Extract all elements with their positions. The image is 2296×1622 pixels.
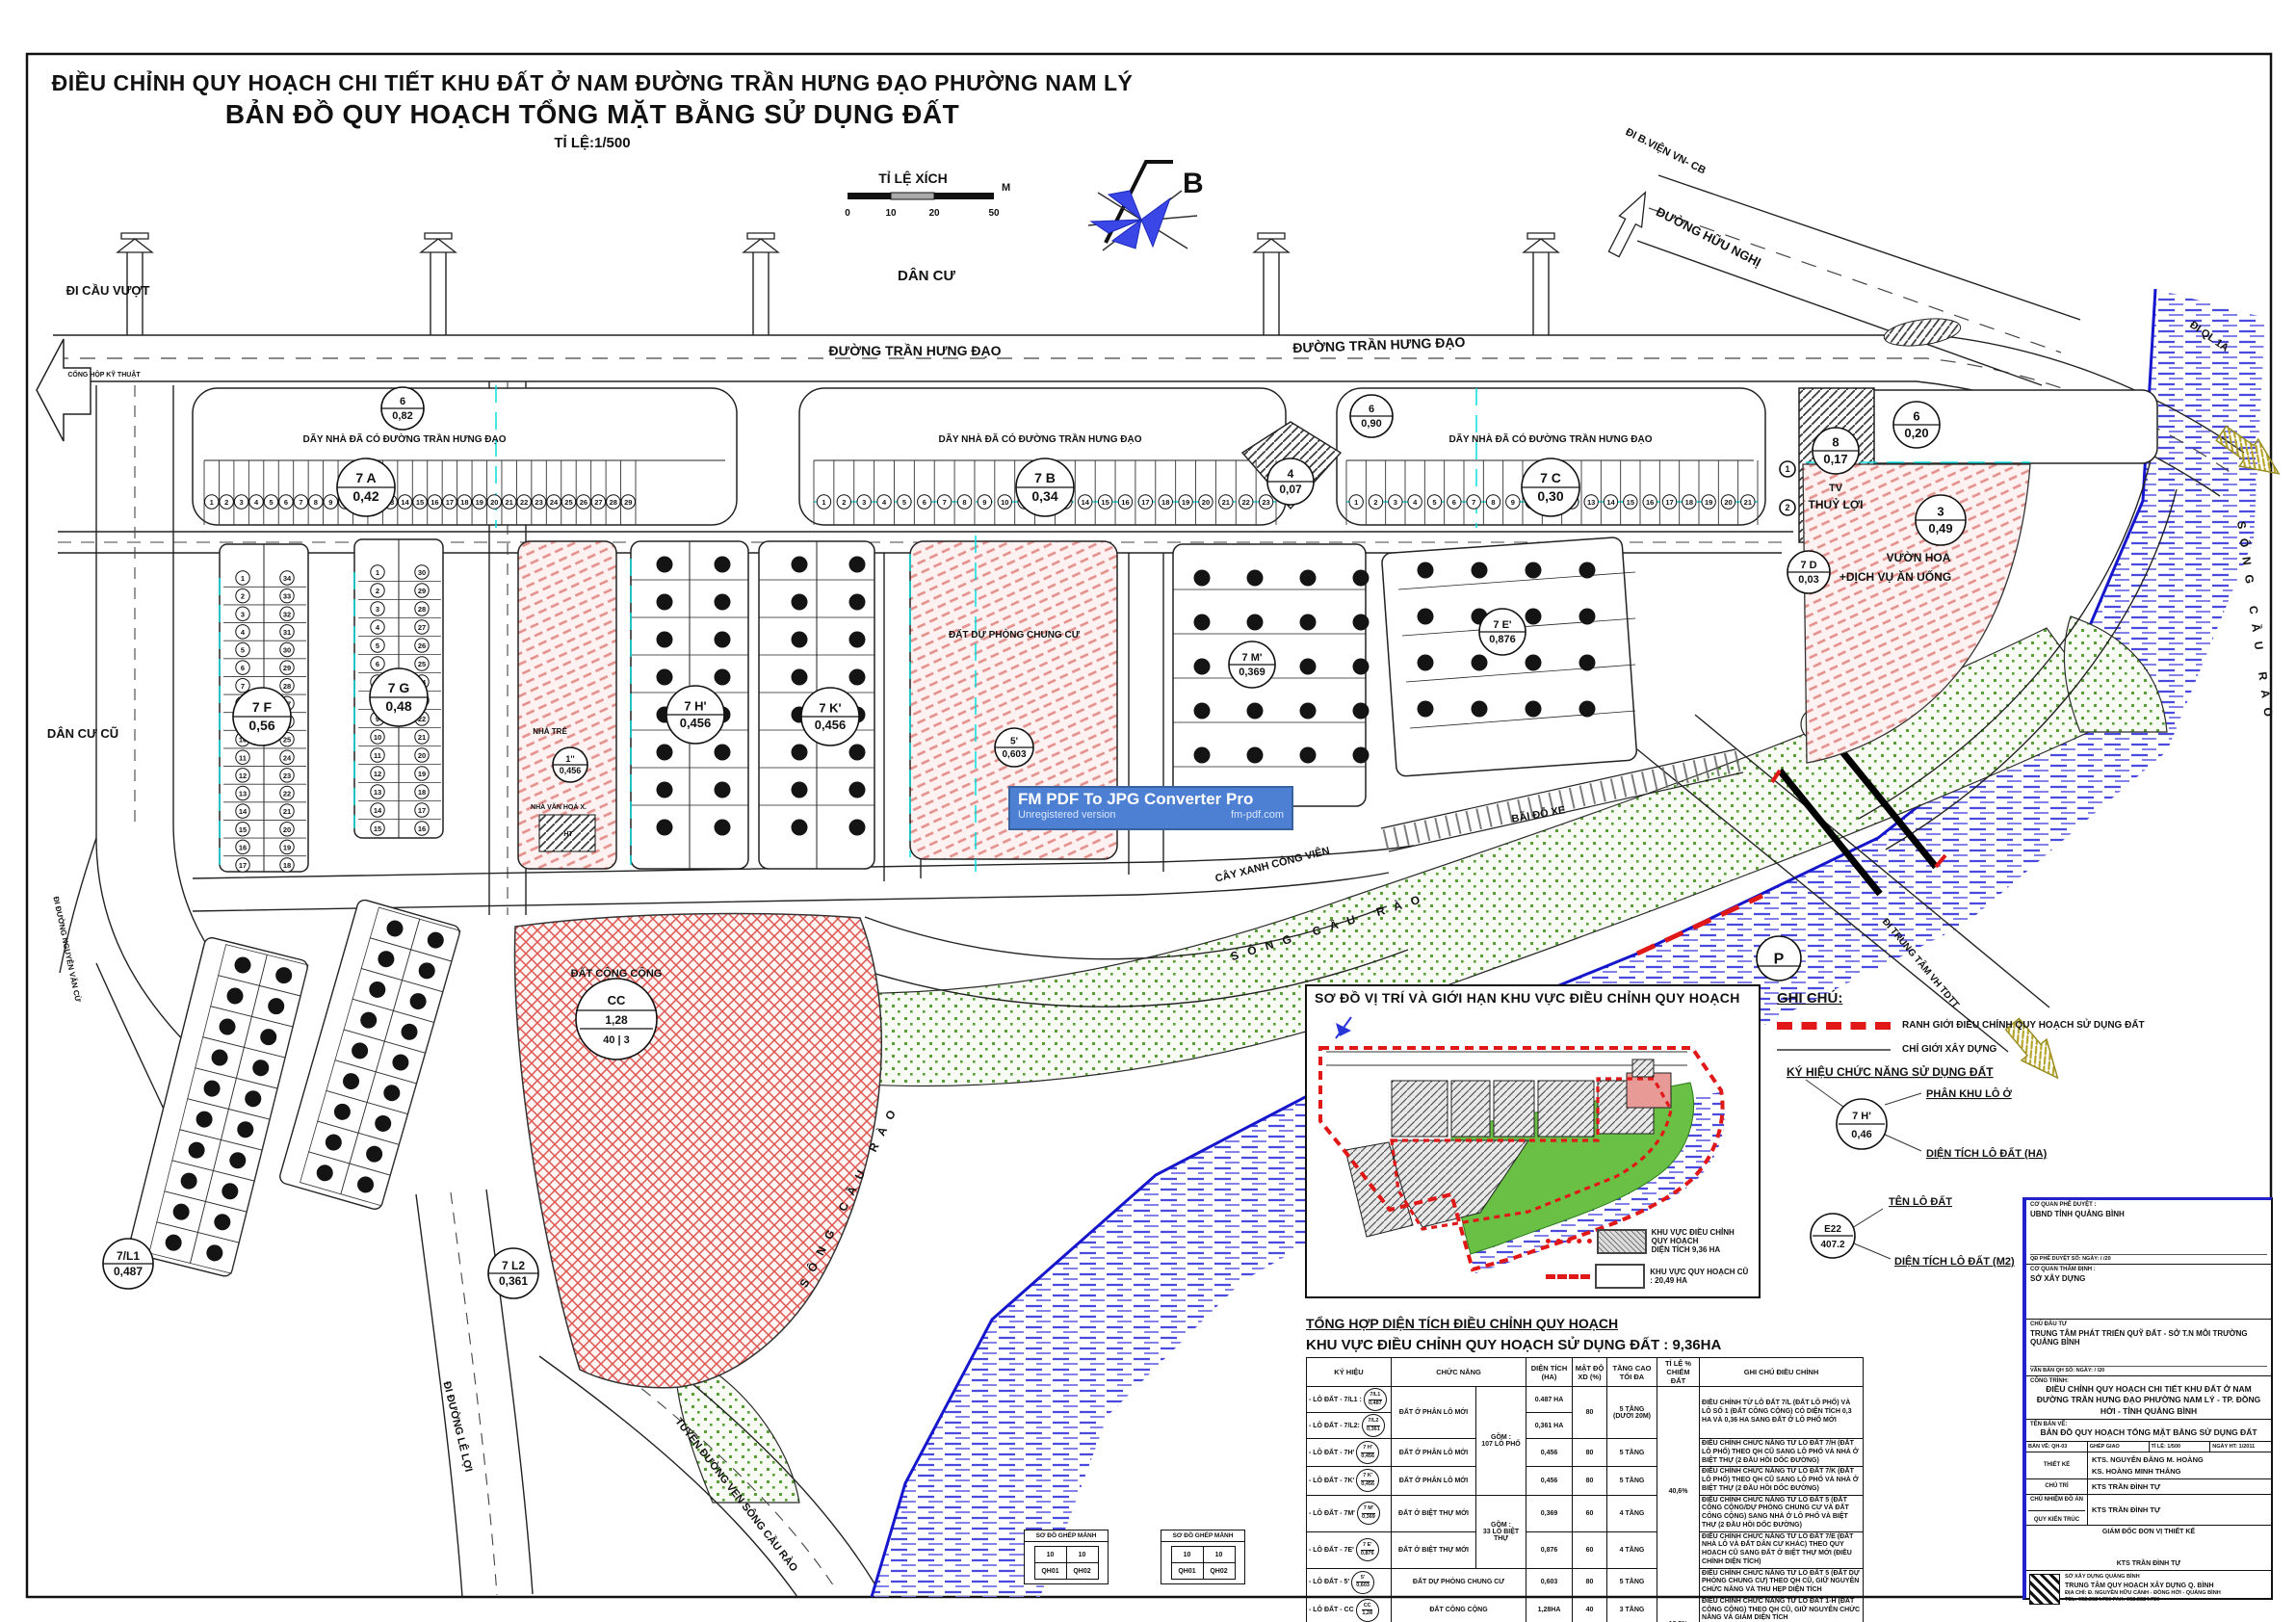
parcel-circle: 2 [1780, 500, 1795, 515]
table-cell: 0,603 [1526, 1568, 1573, 1596]
map-label: +DỊCH VỤ ĂN UỐNG [1839, 569, 1951, 584]
parcel-circle: 40,07 [1267, 458, 1314, 505]
inset-legend-dotted-line [1546, 1239, 1592, 1243]
svg-text:16: 16 [418, 824, 426, 833]
table-row: - LÔ ĐẤT - 7/L1 :7/L10,487ĐẤT Ở PHÂN LÔ … [1307, 1387, 1864, 1413]
svg-text:13: 13 [1587, 498, 1595, 507]
table-cell: 80 [1573, 1467, 1607, 1495]
table-cell: 60 [1573, 1495, 1607, 1531]
svg-text:22: 22 [520, 498, 528, 507]
svg-text:8: 8 [962, 498, 966, 507]
svg-text:11: 11 [239, 753, 247, 762]
table-header: TỈ LỆ % CHIẾM ĐẤT [1657, 1358, 1700, 1387]
svg-text:16: 16 [1646, 498, 1654, 507]
svg-text:B: B [1183, 168, 1204, 199]
svg-text:2: 2 [1373, 498, 1377, 507]
exit-arrow-benh-vien [1603, 187, 1657, 260]
lead-name: KTS TRẦN ĐÌNH TỰ [2092, 1482, 2267, 1491]
watermark-title: FM PDF To JPG Converter Pro [1018, 791, 1284, 809]
drawing-meta-row: BẢN VẼ: QH-03 GHÉP GIAO TỈ LỆ: 1/500 NGÀ… [2026, 1442, 2271, 1452]
svg-text:7 G: 7 G [388, 680, 410, 695]
svg-text:TÊN LÔ ĐẤT: TÊN LÔ ĐẤT [1889, 1195, 1952, 1208]
svg-text:15: 15 [416, 498, 424, 507]
svg-text:P: P [1774, 952, 1785, 968]
svg-text:11: 11 [374, 751, 381, 760]
svg-text:7 L2: 7 L2 [502, 1259, 525, 1272]
scale-bar: TỈ LỆ XÍCH 0 10 20 50 M [845, 170, 1010, 219]
table-cell: 4 TẦNG [1607, 1531, 1657, 1568]
table-cell: 0.487 HA [1526, 1387, 1573, 1413]
svg-text:20: 20 [490, 498, 498, 507]
inset-legend: KHU VỰC ĐIỀU CHỈNH QUY HOẠCH DIỆN TÍCH 9… [1546, 1218, 1753, 1289]
summary-table-panel: TỔNG HỢP DIỆN TÍCH ĐIỀU CHỈNH QUY HOẠCH … [1306, 1316, 1865, 1622]
lead-row: CHỦ TRÌ KTS TRẦN ĐÌNH TỰ [2026, 1479, 2271, 1495]
table-cell: - LÔ ĐẤT - 7K'7 K'0,456 [1307, 1467, 1392, 1495]
parcel-circle: P [1757, 936, 1801, 981]
table-header: MẬT ĐỘ XD (%) [1573, 1358, 1607, 1387]
table-cell: ĐẤT DỰ PHÒNG CHUNG CƯ [1392, 1568, 1526, 1596]
inset-legend-white-swatch [1595, 1264, 1645, 1289]
table-cell: ĐIỀU CHỈNH TỪ LÔ ĐẤT 7/L (ĐẤT LÔ PHỐ) VÀ… [1700, 1387, 1864, 1439]
table-cell: ĐIỀU CHỈNH CHỨC NĂNG TỪ LÔ ĐẤT 7/E (ĐẤT … [1700, 1531, 1864, 1568]
parcel-circle: 60,90 [1350, 395, 1393, 437]
svg-text:1: 1 [1785, 464, 1789, 474]
table-cell: - LÔ ĐẤT - CCCC1,28 [1307, 1596, 1392, 1622]
svg-text:7 A: 7 A [355, 470, 376, 485]
inset-legend2-label: KHU VỰC QUY HOẠCH CŨ : 20,49 HA [1650, 1268, 1753, 1285]
map-label: ĐƯỜNG HỮU NGHỊ [1654, 204, 1763, 270]
map-label: DÃY NHÀ ĐÃ CÓ ĐƯỜNG TRẦN HƯNG ĐẠO [1448, 432, 1652, 445]
svg-text:1: 1 [376, 568, 379, 577]
table-cell: 80 [1573, 1439, 1607, 1467]
table-cell: ĐIỀU CHỈNH CHỨC NĂNG TỪ LÔ ĐẤT 5 (ĐẤT CÔ… [1700, 1495, 1864, 1531]
table-header: GHI CHÚ ĐIỀU CHỈNH [1700, 1358, 1864, 1387]
exit-arrow-cau-vuot [37, 339, 91, 441]
table-cell: - LÔ ĐẤT - 5'5'0,603 [1307, 1568, 1392, 1596]
svg-text:25: 25 [418, 660, 426, 668]
svg-text:0,48: 0,48 [385, 698, 411, 714]
designer-name-2: KS. HOÀNG MINH THẮNG [2092, 1467, 2267, 1476]
table-cell: ĐẤT Ở PHÂN LÔ MỚI [1392, 1467, 1476, 1495]
svg-text:14: 14 [239, 807, 248, 816]
svg-text:5': 5' [1010, 737, 1018, 747]
drawing-date: NGÀY HT: 1/2011 [2210, 1442, 2271, 1452]
svg-text:6: 6 [1913, 408, 1919, 423]
svg-text:0,42: 0,42 [352, 488, 378, 504]
svg-text:27: 27 [594, 498, 602, 507]
svg-text:0,361: 0,361 [499, 1274, 528, 1288]
table-cell: 18,5% [1657, 1596, 1700, 1622]
svg-text:27: 27 [418, 623, 426, 632]
svg-text:0,49: 0,49 [1928, 521, 1952, 536]
table-cell: ĐẤT Ở PHÂN LÔ MỚI [1392, 1439, 1476, 1467]
map-label: ĐI CẦU VƯỢT [66, 283, 150, 298]
svg-text:21: 21 [1744, 498, 1752, 507]
svg-text:20: 20 [1724, 498, 1732, 507]
map-label: NHÀ VĂN HOÁ X. [531, 802, 587, 811]
svg-text:7/L1: 7/L1 [117, 1249, 140, 1263]
parcel-circle: 7 K'0,456 [801, 688, 859, 746]
traffic-island [1883, 315, 1963, 351]
director-name: KTS TRẦN ĐÌNH TỰ [2029, 1560, 2268, 1567]
pdf-converter-watermark: FM PDF To JPG Converter Pro Unregistered… [1008, 786, 1293, 830]
org-line-2: TRUNG TÂM QUY HOẠCH XÂY DỰNG Q. BÌNH [2065, 1582, 2221, 1590]
parcel-circle: 7/L10,487 [103, 1239, 153, 1289]
summary-table: KÝ HIỆUCHỨC NĂNGDIỆN TÍCH (HA)MẬT ĐỘ XD … [1306, 1357, 1864, 1622]
svg-text:6: 6 [241, 664, 245, 672]
map-label: ĐI ĐƯỜNG NGUYỄN VĂN CỪ [51, 896, 82, 1003]
svg-text:31: 31 [283, 628, 291, 637]
svg-text:5: 5 [376, 641, 379, 650]
map-label: ĐƯỜNG TRẦN HƯNG ĐẠO [828, 342, 1001, 358]
svg-text:7 H': 7 H' [684, 698, 706, 713]
watermark-site: fm-pdf.com [1231, 809, 1284, 821]
svg-text:6: 6 [284, 498, 288, 507]
reviewer-value: SỞ XÂY DỰNG [2030, 1274, 2267, 1283]
svg-text:29: 29 [624, 498, 632, 507]
svg-text:23: 23 [283, 772, 291, 780]
svg-text:17: 17 [1665, 498, 1673, 507]
parcel-circle: 7 F0,56 [233, 688, 291, 746]
lead-role: CHỦ TRÌ [2026, 1479, 2088, 1494]
svg-text:20: 20 [1202, 498, 1210, 507]
svg-text:16: 16 [1121, 498, 1129, 507]
parcel-circle: 7 H'0,456 [666, 686, 724, 744]
watermark-subtitle: Unregistered version [1018, 809, 1116, 821]
svg-text:7 H': 7 H' [1852, 1111, 1871, 1122]
svg-text:18: 18 [418, 788, 426, 797]
table-header: DIỆN TÍCH (HA) [1526, 1358, 1573, 1387]
director-label: GIÁM ĐỐC ĐƠN VỊ THIẾT KẾ [2029, 1529, 2268, 1535]
table-row: - LÔ ĐẤT - 7H'7 H'0,456ĐẤT Ở PHÂN LÔ MỚI… [1307, 1439, 1864, 1467]
svg-text:21: 21 [1222, 498, 1230, 507]
svg-text:24: 24 [283, 753, 292, 762]
svg-text:0,30: 0,30 [1537, 488, 1563, 504]
svg-text:14: 14 [374, 806, 382, 815]
parcel-circle: 7 M'0,369 [1229, 641, 1275, 688]
map-label: NHÀ TRẺ [533, 727, 567, 736]
summary-table-subtitle: KHU VỰC ĐIỀU CHỈNH QUY HOẠCH SỬ DỤNG ĐẤT… [1306, 1337, 1865, 1353]
investor-label: CHỦ ĐẦU TƯ [2030, 1321, 2267, 1327]
table-cell: 0,361 HA [1526, 1413, 1573, 1439]
map-label: HT [563, 831, 573, 838]
table-cell: ĐẤT CÔNG CỘNG [1392, 1596, 1526, 1622]
parcel-circle: 7 E'0,876 [1479, 609, 1526, 655]
svg-text:0,82: 0,82 [392, 410, 412, 422]
svg-text:0,876: 0,876 [1489, 634, 1516, 645]
svg-text:0,20: 0,20 [1904, 426, 1928, 440]
investor-section: CHỦ ĐẦU TƯ TRUNG TÂM PHÁT TRIỂN QUỸ ĐẤT … [2026, 1320, 2271, 1376]
svg-text:0,17: 0,17 [1823, 452, 1847, 466]
table-row: - LÔ ĐẤT - 5'5'0,603ĐẤT DỰ PHÒNG CHUNG C… [1307, 1568, 1864, 1596]
svg-text:19: 19 [476, 498, 483, 507]
svg-text:6: 6 [1369, 404, 1374, 415]
summary-table-title: TỔNG HỢP DIỆN TÍCH ĐIỀU CHỈNH QUY HOẠCH [1306, 1316, 1865, 1331]
svg-text:17: 17 [418, 806, 426, 815]
map-label: ĐẤT DỰ PHÒNG CHUNG CƯ [949, 628, 1081, 641]
inset-title: SƠ ĐỒ VỊ TRÍ VÀ GIỚI HẠN KHU VỰC ĐIỀU CH… [1315, 990, 1753, 1006]
approver-note: QĐ PHÊ DUYỆT SỐ: NGÀY: / /20 [2030, 1254, 2267, 1262]
svg-text:7 E': 7 E' [1493, 619, 1512, 631]
map-label: TV [1829, 483, 1843, 494]
parcel-circle: 7 A0,42 [337, 458, 395, 516]
svg-text:13: 13 [374, 788, 381, 797]
svg-text:22: 22 [283, 790, 291, 798]
svg-text:17: 17 [1141, 498, 1149, 507]
svg-text:9: 9 [1511, 498, 1515, 507]
title-block: CƠ QUAN PHÊ DUYỆT : UBND TỈNH QUẢNG BÌNH… [2022, 1197, 2273, 1600]
drawing-name-section: TÊN BẢN VẼ: BẢN ĐỒ QUY HOẠCH TỔNG MẶT BẰ… [2026, 1420, 2271, 1441]
svg-text:3: 3 [240, 498, 244, 507]
map-label: ĐƯỜNG TRẦN HƯNG ĐẠO [1292, 333, 1466, 355]
table-cell: 4 TẦNG [1607, 1495, 1657, 1531]
svg-text:1: 1 [822, 498, 825, 507]
svg-text:33: 33 [283, 592, 291, 601]
parcel-circle: 1''0,456 [553, 747, 587, 782]
svg-text:13: 13 [239, 790, 247, 798]
svg-text:0,487: 0,487 [114, 1265, 143, 1278]
table-cell: GỒM :33 LÔ BIỆT THỰ [1476, 1495, 1526, 1568]
parcel-circle: 80,17 [1813, 428, 1859, 474]
parcel-circle: CC1,2840 | 3 [576, 979, 657, 1060]
svg-text:9: 9 [328, 498, 332, 507]
svg-text:19: 19 [1705, 498, 1712, 507]
svg-text:0,07: 0,07 [1279, 483, 1302, 496]
org-line-3: ĐỊA CHỈ: Đ. NGUYỄN HỮU CẢNH - ĐỒNG HỚI -… [2065, 1590, 2221, 1597]
svg-text:407.2: 407.2 [1820, 1240, 1844, 1250]
svg-text:12: 12 [374, 770, 381, 778]
svg-text:18: 18 [1161, 498, 1169, 507]
svg-text:7: 7 [1472, 498, 1475, 507]
parcel-circle: 7 L20,361 [488, 1248, 538, 1298]
inset-legend1-line1: KHU VỰC ĐIỀU CHỈNH QUY HOẠCH [1652, 1228, 1753, 1245]
svg-text:3: 3 [241, 610, 245, 618]
svg-text:28: 28 [610, 498, 617, 507]
svg-text:9: 9 [982, 498, 986, 507]
svg-text:3: 3 [1394, 498, 1397, 507]
chief-row: CHỦ NHIỆM ĐỒ ÁN QUY KIẾN TRÚC KTS TRẦN Đ… [2026, 1495, 2271, 1526]
svg-text:19: 19 [283, 843, 291, 851]
svg-text:16: 16 [430, 498, 438, 507]
table-cell: 60 [1573, 1531, 1607, 1568]
svg-text:0: 0 [845, 208, 850, 219]
svg-text:8: 8 [1832, 434, 1839, 449]
parcel-circle: 7 D0,03 [1787, 551, 1830, 593]
table-cell: 0,456 [1526, 1467, 1573, 1495]
svg-text:19: 19 [1182, 498, 1189, 507]
table-cell: 5 TẦNG (DƯỚI 20M) [1607, 1387, 1657, 1439]
map-label: VƯỜN HOA [1887, 550, 1951, 564]
svg-text:21: 21 [418, 733, 426, 742]
svg-text:7: 7 [299, 498, 302, 507]
parcel-circle: 7 C0,30 [1522, 458, 1579, 516]
project-section: CÔNG TRÌNH: ĐIỀU CHỈNH QUY HOẠCH CHI TIẾ… [2026, 1376, 2271, 1420]
svg-text:19: 19 [418, 770, 426, 778]
parcel-circle: 60,20 [1893, 402, 1940, 448]
svg-text:2: 2 [224, 498, 228, 507]
svg-text:15: 15 [239, 825, 247, 834]
svg-text:20: 20 [928, 208, 940, 219]
svg-text:8: 8 [1491, 498, 1495, 507]
svg-text:25: 25 [283, 736, 291, 745]
table-cell: 1,28HA [1526, 1596, 1573, 1622]
svg-text:0,456: 0,456 [815, 718, 847, 732]
org-logo [2029, 1574, 2060, 1605]
svg-text:22: 22 [1242, 498, 1250, 507]
svg-text:14: 14 [1082, 498, 1090, 507]
table-row: - LÔ ĐẤT - 7K'7 K'0,456ĐẤT Ở PHÂN LÔ MỚI… [1307, 1467, 1864, 1495]
svg-text:18: 18 [460, 498, 468, 507]
svg-text:23: 23 [535, 498, 542, 507]
drawing-scale: TỈ LỆ: 1/500 [2150, 1442, 2211, 1452]
svg-text:29: 29 [418, 587, 426, 595]
svg-text:PHÂN KHU LÔ Ở: PHÂN KHU LÔ Ở [1926, 1087, 2012, 1100]
org-line-1: SỞ XÂY DỰNG QUẢNG BÌNH [2065, 1574, 2221, 1581]
svg-text:26: 26 [580, 498, 587, 507]
sheet-index-title: SƠ ĐỒ GHÉP MẢNH [1161, 1530, 1244, 1542]
table-cell: - LÔ ĐẤT - 7/L1 :7/L10,487 [1307, 1387, 1392, 1413]
org-line-4: TEL: 052.3824.730 FAX: 052.3824.730 [2065, 1597, 2221, 1604]
org-section: SỞ XÂY DỰNG QUẢNG BÌNH TRUNG TÂM QUY HOẠ… [2026, 1571, 2271, 1608]
dat-cong-cong-area [514, 914, 881, 1388]
svg-text:0,456: 0,456 [680, 716, 712, 730]
table-cell: GỒM :107 LÔ PHỐ [1476, 1387, 1526, 1496]
svg-text:5: 5 [241, 646, 245, 655]
map-label: CÂY XANH CÔNG VIÊN [1213, 845, 1331, 885]
table-header: TẦNG CAO TỐI ĐA [1607, 1358, 1657, 1387]
table-cell: 0,456 [1526, 1439, 1573, 1467]
parcel-circle: 7 G0,48 [370, 668, 428, 726]
table-cell: ĐẤT Ở BIỆT THỰ MỚI [1392, 1531, 1476, 1568]
project-value: ĐIỀU CHỈNH QUY HOẠCH CHI TIẾT KHU ĐẤT Ở … [2030, 1384, 2267, 1417]
svg-text:15: 15 [1627, 498, 1634, 507]
map-label: ĐẤT CÔNG CỘNG [571, 967, 663, 980]
table-header: KÝ HIỆU [1307, 1358, 1392, 1387]
svg-text:1: 1 [241, 574, 245, 583]
drawing-overlay: GHÉP GIAO [2088, 1442, 2150, 1452]
table-cell: ĐIỀU CHỈNH CHỨC NĂNG TỪ LÔ ĐẤT 7/K (ĐẤT … [1700, 1467, 1864, 1495]
legend-buildline-label: CHỈ GIỚI XÂY DỰNG [1902, 1044, 1996, 1055]
svg-text:12: 12 [239, 772, 247, 780]
legend-heading: GHI CHÚ: [1777, 990, 2239, 1007]
svg-text:10: 10 [885, 208, 897, 219]
svg-text:7: 7 [241, 682, 245, 691]
table-row: - LÔ ĐẤT - 7M'7 M'0,369ĐẤT Ở BIỆT THỰ MỚ… [1307, 1495, 1864, 1531]
designer-row: THIẾT KẾ KTS. NGUYỄN ĐĂNG M. HOÀNG KS. H… [2026, 1452, 2271, 1479]
svg-text:E22: E22 [1824, 1224, 1841, 1235]
svg-text:2: 2 [842, 498, 846, 507]
svg-text:25: 25 [564, 498, 572, 507]
reviewer-label: CƠ QUAN THẨM ĐỊNH : [2030, 1267, 2267, 1272]
reviewer-section: CƠ QUAN THẨM ĐỊNH : SỞ XÂY DỰNG [2026, 1265, 2271, 1320]
svg-text:17: 17 [446, 498, 454, 507]
svg-text:1,28: 1,28 [605, 1013, 628, 1027]
svg-text:7 F: 7 F [252, 699, 273, 715]
north-arrow-icon: B [1088, 162, 1204, 250]
svg-text:10: 10 [374, 733, 381, 742]
svg-text:2: 2 [241, 592, 245, 601]
sheet-index-box-2: SƠ ĐỒ GHÉP MẢNH 1010 QH01QH02 [1161, 1530, 1245, 1584]
svg-text:KÝ HIỆU CHỨC NĂNG SỬ DỤNG ĐẤT: KÝ HIỆU CHỨC NĂNG SỬ DỤNG ĐẤT [1787, 1064, 1994, 1079]
svg-text:34: 34 [283, 574, 292, 583]
svg-text:8: 8 [314, 498, 318, 507]
svg-text:0,90: 0,90 [1361, 418, 1381, 430]
svg-text:0,369: 0,369 [1239, 667, 1265, 678]
legend-buildline-sample [1777, 1049, 1891, 1051]
svg-text:1: 1 [210, 498, 214, 507]
svg-text:26: 26 [418, 641, 426, 650]
approver-label: CƠ QUAN PHÊ DUYỆT : [2030, 1202, 2267, 1208]
approver-value: UBND TỈNH QUẢNG BÌNH [2030, 1210, 2267, 1218]
designer-role: THIẾT KẾ [2026, 1452, 2088, 1478]
inset-legend-dashed-line [1546, 1274, 1590, 1279]
svg-text:0,456: 0,456 [560, 766, 582, 775]
sheet-index-box-1: SƠ ĐỒ GHÉP MẢNH 1010 QH01QH02 [1024, 1530, 1109, 1584]
svg-text:3: 3 [862, 498, 866, 507]
svg-text:29: 29 [283, 664, 291, 672]
svg-text:7 B: 7 B [1034, 470, 1056, 485]
table-cell: - LÔ ĐẤT - 7M'7 M'0,369 [1307, 1495, 1392, 1531]
table-cell: - LÔ ĐẤT - 7/L2:7/L20,361 [1307, 1413, 1392, 1439]
drawing-number: BẢN VẼ: QH-03 [2026, 1442, 2088, 1452]
table-cell: 3 TẦNG [1607, 1596, 1657, 1622]
approver-section: CƠ QUAN PHÊ DUYỆT : UBND TỈNH QUẢNG BÌNH… [2026, 1200, 2271, 1265]
parcel-circle: 5'0,603 [995, 728, 1033, 767]
investor-value: TRUNG TÂM PHÁT TRIỂN QUỸ ĐẤT - SỞ T.N MÔ… [2030, 1329, 2267, 1347]
sheet-index-title: SƠ ĐỒ GHÉP MẢNH [1025, 1530, 1108, 1542]
svg-text:1'': 1'' [565, 754, 574, 764]
svg-text:M: M [1002, 182, 1010, 194]
svg-text:2: 2 [1785, 503, 1789, 512]
svg-text:50: 50 [988, 208, 1000, 219]
map-label: DÂN CƯ [898, 267, 955, 284]
svg-text:28: 28 [418, 605, 426, 614]
chief-role-1: CHỦ NHIỆM ĐỒ ÁN [2030, 1497, 2083, 1503]
svg-text:7: 7 [943, 498, 947, 507]
svg-text:2: 2 [376, 587, 379, 595]
svg-text:0,56: 0,56 [248, 718, 274, 733]
table-cell: 40,6% [1657, 1387, 1700, 1597]
inset-location-map: SƠ ĐỒ VỊ TRÍ VÀ GIỚI HẠN KHU VỰC ĐIỀU CH… [1305, 984, 1761, 1298]
map-label: DÃY NHÀ ĐÃ CÓ ĐƯỜNG TRẦN HƯNG ĐẠO [938, 432, 1141, 445]
table-cell: 5 TẦNG [1607, 1568, 1657, 1596]
svg-text:3: 3 [1937, 504, 1944, 518]
plan-sheet: TỈ LỆ XÍCH 0 10 20 50 M B 12345678910111… [0, 0, 2296, 1622]
svg-text:5: 5 [902, 498, 906, 507]
table-cell: 80 [1573, 1568, 1607, 1596]
table-cell: - LÔ ĐẤT - 7H'7 H'0,456 [1307, 1439, 1392, 1467]
table-cell: 5 TẦNG [1607, 1467, 1657, 1495]
svg-text:4: 4 [1288, 467, 1294, 481]
svg-text:0,603: 0,603 [1002, 749, 1026, 760]
chief-name: KTS TRẦN ĐÌNH TỰ [2092, 1505, 2267, 1514]
svg-text:6: 6 [376, 660, 379, 668]
table-cell: 0,876 [1526, 1531, 1573, 1568]
map-label: ĐI B.VIỆN VN- CB [1624, 125, 1709, 176]
svg-text:15: 15 [374, 824, 381, 833]
bottom-left-groups [127, 899, 461, 1278]
svg-text:18: 18 [1685, 498, 1693, 507]
svg-text:5: 5 [1432, 498, 1436, 507]
table-cell: ĐẤT Ở PHÂN LÔ MỚI [1392, 1387, 1476, 1439]
legend-boundary-label: RANH GIỚI ĐIỀU CHỈNH QUY HOẠCH SỬ DỤNG Đ… [1902, 1020, 2145, 1031]
table-cell: ĐIỀU CHỈNH CHỨC NĂNG TỪ LÔ ĐẤT 5 (ĐẤT DỰ… [1700, 1568, 1864, 1596]
table-cell: ĐIỀU CHỈNH CHỨC NĂNG TỪ LÔ ĐẤT 7/H (ĐẤT … [1700, 1439, 1864, 1467]
svg-text:24: 24 [550, 498, 559, 507]
svg-text:14: 14 [401, 498, 409, 507]
svg-text:30: 30 [418, 568, 426, 577]
table-header: CHỨC NĂNG [1392, 1358, 1526, 1387]
